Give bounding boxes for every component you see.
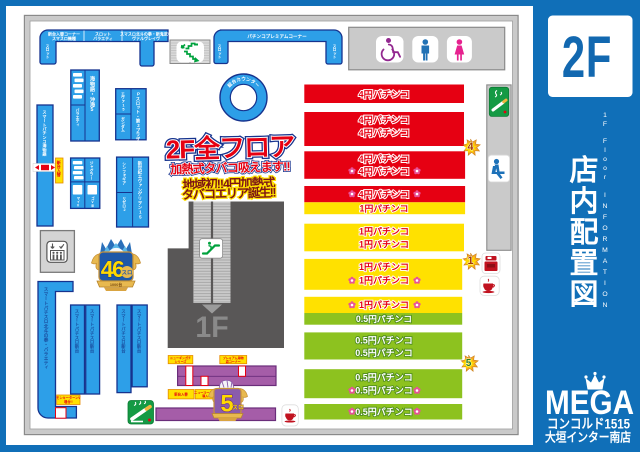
svg-text:1000台: 1000台 bbox=[110, 282, 122, 287]
svg-text:スマートパチスロ新台: スマートパチスロ新台 bbox=[136, 309, 142, 355]
svg-text:4円パチンコ: 4円パチンコ bbox=[358, 89, 409, 100]
svg-text:配: 配 bbox=[569, 217, 598, 249]
svg-text:4: 4 bbox=[467, 141, 473, 153]
svg-text:スマートパチスロ新台: スマートパチスロ新台 bbox=[89, 309, 95, 355]
svg-text:加熱式タバコ吸えます!!: 加熱式タバコ吸えます!! bbox=[169, 158, 290, 176]
svg-text:4円パチンコ: 4円パチンコ bbox=[358, 189, 409, 200]
svg-text:大垣インター南店: 大垣インター南店 bbox=[545, 430, 631, 445]
svg-text:タバコエリア誕生!!: タバコエリア誕生!! bbox=[182, 185, 276, 202]
svg-text:4円パチンコ: 4円パチンコ bbox=[358, 166, 409, 177]
svg-text:スロット: スロット bbox=[158, 43, 163, 59]
svg-text:0.5円パチンコ: 0.5円パチンコ bbox=[355, 372, 413, 383]
svg-text:バラエティ: バラエティ bbox=[75, 107, 80, 127]
svg-text:0.5円パチンコ: 0.5円パチンコ bbox=[355, 347, 413, 358]
svg-text:内: 内 bbox=[569, 185, 598, 218]
svg-text:エヴァ15: エヴァ15 bbox=[120, 92, 125, 111]
svg-text:4円パチンコ: 4円パチンコ bbox=[358, 127, 409, 138]
svg-text:1円パチンコ: 1円パチンコ bbox=[359, 275, 409, 286]
svg-text:スマートパチンコ海物語: スマートパチンコ海物語 bbox=[42, 110, 48, 158]
svg-text:スマートパチスロ北斗の拳・バラエティ: スマートパチスロ北斗の拳・バラエティ bbox=[43, 287, 49, 370]
svg-text:Pスロット・第2プラザ: Pスロット・第2プラザ bbox=[135, 92, 141, 143]
svg-text:バラエティ: バラエティ bbox=[93, 35, 113, 41]
svg-text:1円パチンコ: 1円パチンコ bbox=[360, 203, 409, 214]
svg-text:2F: 2F bbox=[562, 24, 612, 89]
svg-text:海物語・沖海5: 海物語・沖海5 bbox=[89, 75, 95, 114]
svg-text:0.5円パチンコ: 0.5円パチンコ bbox=[355, 406, 413, 417]
svg-text:マイV: マイV bbox=[76, 196, 80, 207]
svg-text:リゼロ2: リゼロ2 bbox=[121, 196, 126, 212]
svg-text:シンフォギア: シンフォギア bbox=[121, 161, 126, 185]
svg-text:1円パチンコ: 1円パチンコ bbox=[359, 261, 409, 272]
svg-text:新世紀エヴァンゲリヲン15: 新世紀エヴァンゲリヲン15 bbox=[137, 160, 143, 220]
svg-text:46: 46 bbox=[101, 256, 124, 282]
svg-text:パチンコプレミアムコーナー: パチンコプレミアムコーナー bbox=[247, 33, 307, 40]
svg-text:0.5円パチンコ: 0.5円パチンコ bbox=[355, 385, 413, 396]
svg-text:T: T bbox=[603, 269, 607, 276]
svg-text:F: F bbox=[603, 214, 607, 221]
svg-text:M: M bbox=[602, 247, 608, 254]
svg-text:I: I bbox=[604, 280, 606, 287]
svg-text:4円パチンコ: 4円パチンコ bbox=[358, 153, 409, 164]
svg-text:N: N bbox=[603, 203, 608, 210]
svg-text:0.5円パチンコ: 0.5円パチンコ bbox=[356, 313, 412, 324]
svg-text:I: I bbox=[604, 192, 606, 199]
svg-text:A: A bbox=[603, 258, 608, 265]
svg-text:O: O bbox=[602, 225, 607, 232]
svg-text:F: F bbox=[603, 121, 607, 128]
svg-text:スロ: スロ bbox=[232, 405, 244, 412]
svg-text:ガンダム: ガンダム bbox=[120, 116, 125, 132]
svg-text:R: R bbox=[603, 236, 608, 243]
svg-text:o: o bbox=[603, 156, 607, 163]
svg-text:F: F bbox=[603, 138, 607, 145]
svg-text:スロット: スロット bbox=[45, 43, 50, 59]
svg-text:スマートパチスロ新台: スマートパチスロ新台 bbox=[121, 309, 127, 355]
svg-text:スロ: スロ bbox=[121, 270, 132, 277]
svg-text:スロット: スロット bbox=[217, 43, 222, 59]
svg-text:新台入替: 新台入替 bbox=[174, 392, 188, 397]
svg-text:1円パチンコ: 1円パチンコ bbox=[359, 226, 409, 237]
svg-text:ジャグラー: ジャグラー bbox=[89, 160, 94, 180]
svg-text:N: N bbox=[603, 302, 608, 309]
svg-text:シリーズ: シリーズ bbox=[175, 359, 187, 364]
svg-text:置: 置 bbox=[569, 248, 598, 280]
svg-text:増台!!: 増台!! bbox=[64, 399, 73, 404]
svg-text:新台入替: 新台入替 bbox=[57, 159, 62, 177]
svg-text:1円パチンコ: 1円パチンコ bbox=[359, 299, 409, 310]
svg-text:図: 図 bbox=[569, 279, 598, 311]
svg-text:1F: 1F bbox=[195, 311, 228, 344]
svg-text:4円パチンコ: 4円パチンコ bbox=[358, 114, 409, 125]
svg-text:o: o bbox=[603, 165, 607, 172]
svg-text:語コーナー: 語コーナー bbox=[226, 359, 241, 364]
svg-text:ヴァルヴレイヴ: ヴァルヴレイヴ bbox=[132, 35, 160, 41]
svg-text:O: O bbox=[602, 291, 607, 298]
svg-text:コンコルド1515: コンコルド1515 bbox=[547, 417, 630, 432]
svg-text:スマスロ機種: スマスロ機種 bbox=[52, 35, 76, 41]
svg-text:1円パチンコ: 1円パチンコ bbox=[359, 239, 409, 250]
svg-text:5: 5 bbox=[466, 358, 472, 369]
svg-text:1: 1 bbox=[603, 112, 607, 119]
svg-text:スロット: スロット bbox=[332, 43, 337, 59]
svg-text:1: 1 bbox=[467, 255, 473, 267]
svg-text:店: 店 bbox=[569, 154, 598, 187]
svg-text:0.5円パチンコ: 0.5円パチンコ bbox=[355, 335, 413, 346]
svg-text:ゴVⅢ: ゴVⅢ bbox=[90, 195, 94, 207]
svg-text:スマートパチスロ新台: スマートパチスロ新台 bbox=[74, 309, 80, 355]
